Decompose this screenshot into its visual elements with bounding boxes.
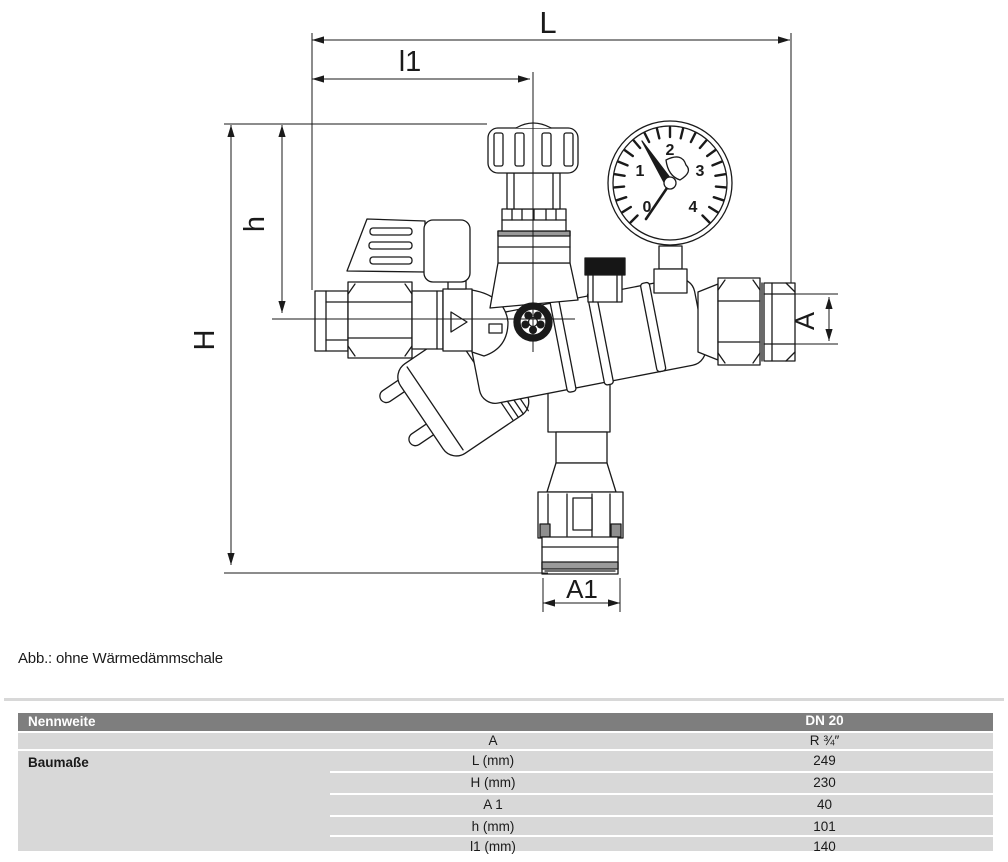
table-header-value: DN 20 xyxy=(656,713,993,728)
dim-label-H: H xyxy=(189,330,221,351)
gauge-number-1: 1 xyxy=(636,163,645,180)
table-header-label: Nennweite xyxy=(28,713,96,731)
param-cell: l1 (mm) xyxy=(330,837,656,857)
dimensions-table: Nennweite DN 20 A R ¾″ Baumaße L (mm) 24… xyxy=(0,698,1008,862)
table-row: L (mm) 249 xyxy=(18,751,993,771)
gauge-number-4: 4 xyxy=(689,199,698,216)
body-detail xyxy=(489,324,502,333)
figure-caption: Abb.: ohne Wärmedämmschale xyxy=(18,650,223,667)
value-cell: 140 xyxy=(656,837,993,857)
dim-label-L: L xyxy=(539,5,556,40)
table-row: l1 (mm) 140 xyxy=(18,837,993,857)
dim-label-A: A xyxy=(790,312,820,330)
handle-head xyxy=(424,220,470,282)
gauge-number-2: 2 xyxy=(666,142,675,159)
datasheet-page: L l1 h H A A1 0 1 2 3 4 Abb.: ohne Wärme… xyxy=(0,0,1008,862)
table-header-row: Nennweite DN 20 xyxy=(18,713,993,731)
test-port-cap xyxy=(585,258,625,275)
value-cell: R ¾″ xyxy=(656,733,993,749)
value-cell: 40 xyxy=(656,795,993,815)
table-row: h (mm) 101 xyxy=(18,817,993,837)
table-row: A 1 40 xyxy=(18,795,993,815)
gauge-number-0: 0 xyxy=(643,199,652,216)
outlet-fitting xyxy=(718,278,795,365)
param-cell: L (mm) xyxy=(330,751,656,771)
dim-label-h: h xyxy=(239,216,271,232)
param-cell: A 1 xyxy=(330,795,656,815)
table-row-A: A R ¾″ xyxy=(18,733,993,749)
needle-hub xyxy=(664,177,676,189)
param-cell: A xyxy=(330,733,656,749)
value-cell: 101 xyxy=(656,817,993,837)
gauge-number-3: 3 xyxy=(696,163,705,180)
param-cell: h (mm) xyxy=(330,817,656,837)
test-port xyxy=(585,258,625,302)
value-cell: 249 xyxy=(656,751,993,771)
table-top-strip xyxy=(4,698,1004,701)
inlet-fitting xyxy=(315,282,443,358)
drain-outlet xyxy=(538,432,623,574)
param-cell: H (mm) xyxy=(330,773,656,793)
dim-label-l1: l1 xyxy=(399,46,422,78)
dim-label-A1: A1 xyxy=(566,574,598,604)
table-row: H (mm) 230 xyxy=(18,773,993,793)
valve-technical-drawing: L l1 h H A A1 0 1 2 3 4 xyxy=(0,0,1008,640)
value-cell: 230 xyxy=(656,773,993,793)
table-body: Baumaße L (mm) 249 H (mm) 230 A 1 40 h (… xyxy=(18,751,993,851)
body-shoulder-right xyxy=(698,284,718,360)
